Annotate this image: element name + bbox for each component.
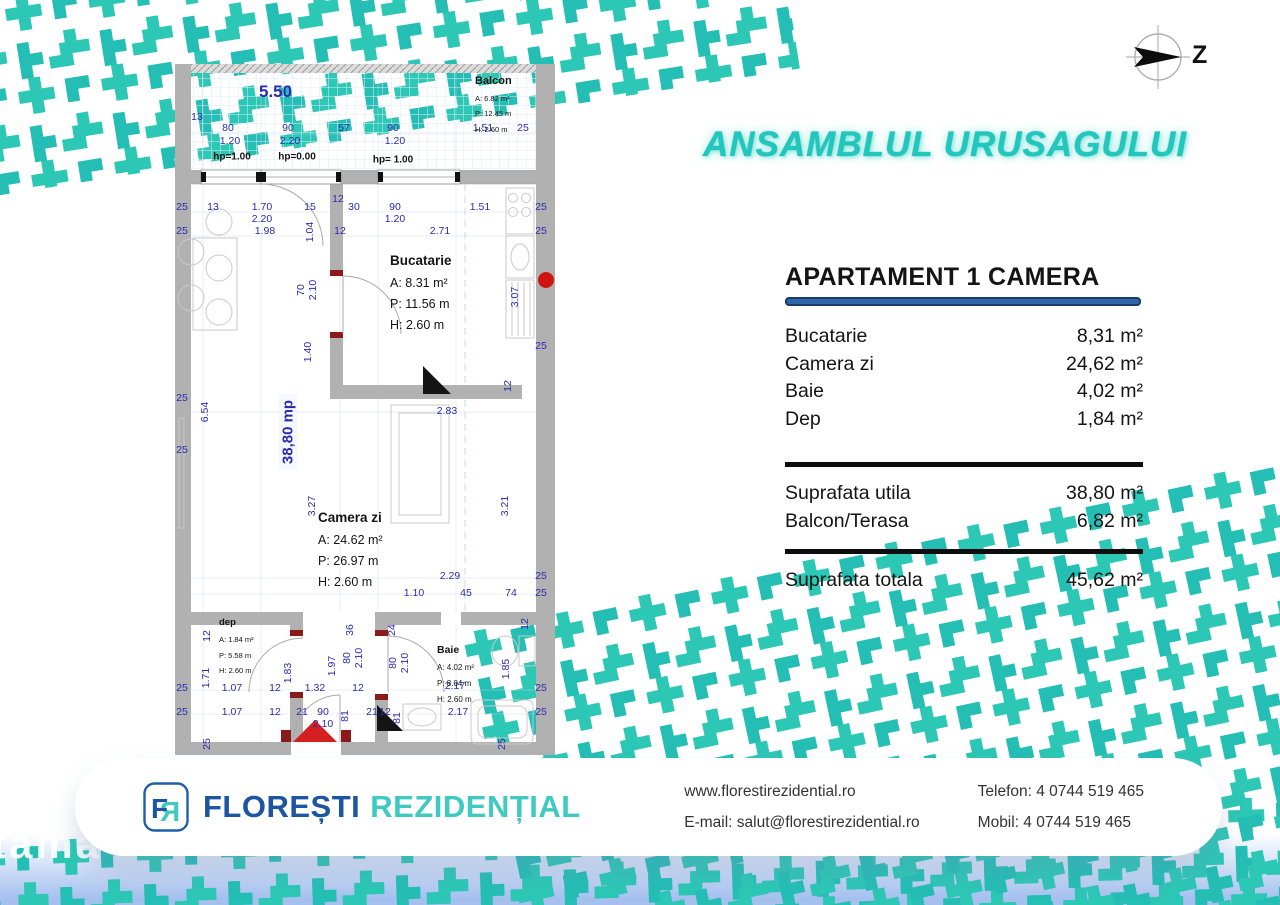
total-label: Suprafata totala (785, 567, 923, 595)
subtotal-row-value: 6,82 m² (1077, 508, 1143, 536)
subtotal-row-label: Balcon/Terasa (785, 508, 909, 536)
subtotal-row-value: 38,80 m² (1066, 480, 1143, 508)
room-row: Baie4,02 m² (785, 378, 1143, 406)
subtotal-row: Balcon/Terasa6,82 m² (785, 508, 1143, 536)
room-row-label: Bucatarie (785, 323, 867, 351)
room-row: Camera zi24,62 m² (785, 351, 1143, 379)
project-title: ANSAMBLUL URUSAGULUI (703, 125, 1243, 165)
room-row-label: Dep (785, 406, 821, 434)
panel-room-list: Bucatarie8,31 m²Camera zi24,62 m²Baie4,0… (785, 323, 1143, 433)
footer-contact-phone-col: Telefon: 4 0744 519 465 Mobil: 4 0744 51… (978, 783, 1144, 832)
panel-subtotal-list: Suprafata utila38,80 m²Balcon/Terasa6,82… (785, 480, 1143, 535)
logo-letter-blue: F (151, 793, 168, 824)
total-value: 45,62 m² (1066, 567, 1143, 595)
divider-bottom (785, 549, 1143, 554)
room-row-value: 24,62 m² (1066, 351, 1143, 379)
brand-name-blue: FLOREȘTI (203, 789, 360, 825)
brand-logo: Я F FLOREȘTI REZIDENȚIAL (143, 782, 581, 832)
heading-underline (785, 297, 1141, 306)
room-row-label: Baie (785, 378, 824, 406)
footer: Я F FLOREȘTI REZIDENȚIAL www.florestirez… (75, 758, 1222, 856)
room-row-label: Camera zi (785, 351, 874, 379)
brand-name-teal: REZIDENȚIAL (370, 789, 580, 825)
footer-mobile: Mobil: 4 0744 519 465 (978, 814, 1144, 832)
flyer-page: tama Z ANSAMBLUL URUSAGULUI (0, 0, 1280, 905)
footer-contact-web-col: www.florestirezidential.ro E-mail: salut… (684, 783, 919, 832)
room-row-value: 8,31 m² (1077, 323, 1143, 351)
total-area-label: 38,80 mp (279, 394, 298, 470)
footer-contact: www.florestirezidential.ro E-mail: salut… (684, 783, 1144, 832)
compass: Z (1126, 24, 1216, 90)
room-row-value: 4,02 m² (1077, 378, 1143, 406)
room-row: Bucatarie8,31 m² (785, 323, 1143, 351)
room-row-value: 1,84 m² (1077, 406, 1143, 434)
panel-heading: APARTAMENT 1 CAMERA (785, 263, 1143, 292)
brand-logo-icon: Я F (143, 782, 189, 832)
subtotal-row-label: Suprafata utila (785, 480, 911, 508)
divider-top (785, 462, 1143, 467)
compass-north-label: Z (1192, 41, 1207, 70)
footer-phone: Telefon: 4 0744 519 465 (978, 783, 1144, 801)
floor-plan: 13809057901.51251.202.201.20hp=1.00hp=0.… (175, 60, 555, 755)
panel-total-row: Suprafata totala 45,62 m² (785, 567, 1143, 595)
footer-website: www.florestirezidential.ro (684, 783, 919, 801)
apartment-panel: APARTAMENT 1 CAMERA Bucatarie8,31 m²Came… (785, 263, 1143, 595)
balcony-width-label: 5.50 (259, 82, 292, 102)
floor-plan-drawing (175, 60, 555, 755)
room-row: Dep1,84 m² (785, 406, 1143, 434)
subtotal-row: Suprafata utila38,80 m² (785, 480, 1143, 508)
footer-email: E-mail: salut@florestirezidential.ro (684, 814, 919, 832)
